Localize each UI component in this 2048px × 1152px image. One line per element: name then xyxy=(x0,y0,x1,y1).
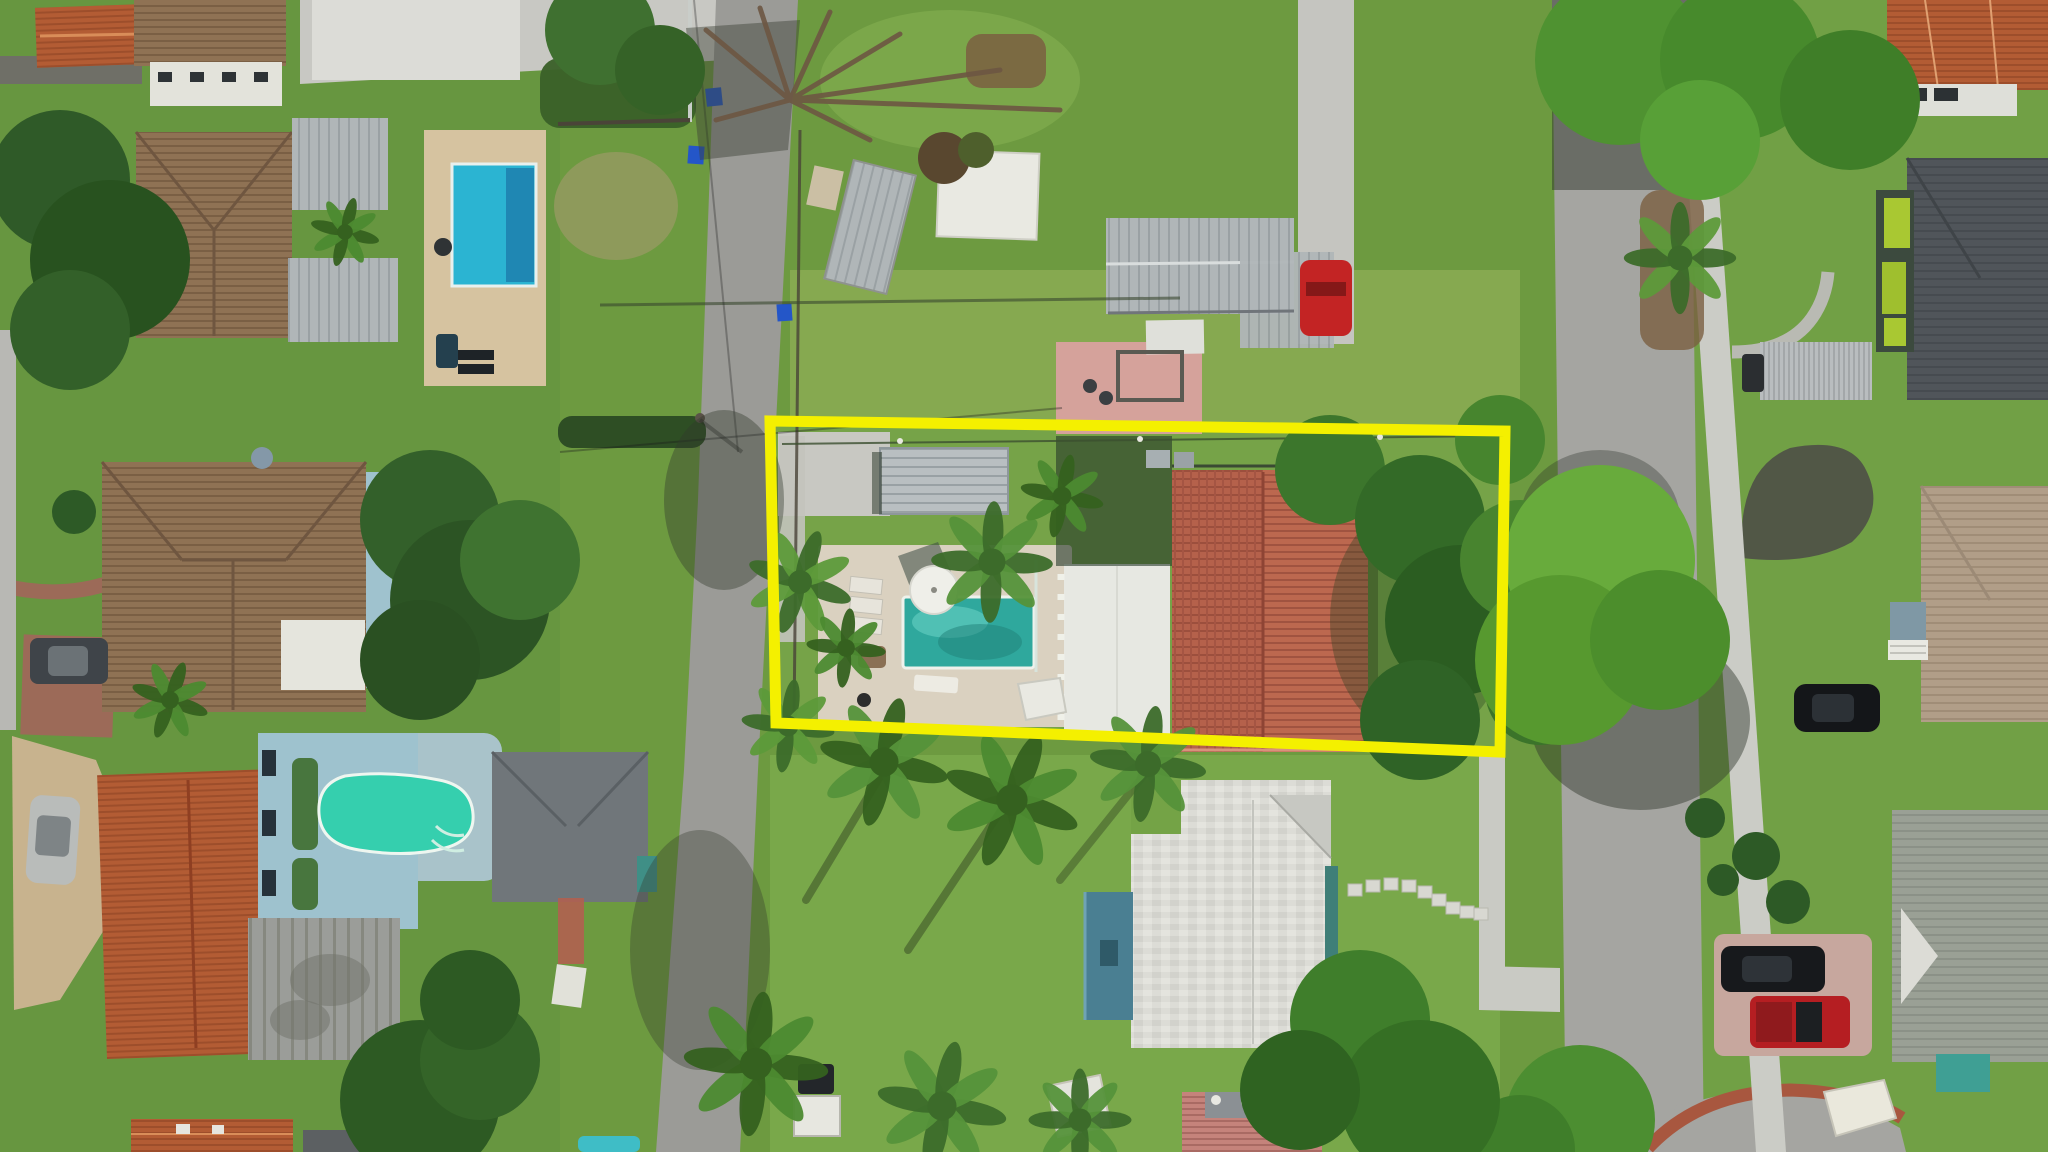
white-driveway-slab xyxy=(312,0,520,80)
white-tent xyxy=(1018,678,1066,720)
patio-chair xyxy=(1099,391,1113,405)
driveway-apron xyxy=(1479,966,1560,1012)
palm-tree xyxy=(1624,202,1736,314)
plank-stain xyxy=(270,1000,330,1040)
hot-tub xyxy=(436,334,458,368)
satellite-dish xyxy=(251,447,273,469)
grass-sandy-patch xyxy=(554,152,678,260)
teal-awning xyxy=(1936,1054,1990,1092)
car-under-carport xyxy=(1742,354,1764,392)
pool-kidney xyxy=(319,774,473,854)
tree xyxy=(1360,660,1480,780)
tree xyxy=(1780,30,1920,170)
deck-lounger xyxy=(458,364,494,374)
dark-car-glass xyxy=(48,646,88,676)
patio-chair xyxy=(1083,379,1097,393)
lanai-window xyxy=(190,72,204,82)
shed-vines xyxy=(958,132,994,168)
palm-crown xyxy=(837,639,855,657)
stepping-stone xyxy=(1474,908,1488,920)
metal-roof-b xyxy=(288,258,398,342)
orange-roof-ridge xyxy=(40,34,140,36)
fence-post xyxy=(1377,434,1383,440)
palm-crown xyxy=(1053,487,1072,506)
stepping-stone xyxy=(1402,880,1416,892)
silver-car-glass xyxy=(35,815,72,857)
deck-lounger xyxy=(458,350,494,360)
white-roof-edge xyxy=(1146,319,1205,354)
palm-crown xyxy=(740,1048,772,1080)
red-car xyxy=(1300,260,1352,336)
topiary-ball xyxy=(1766,880,1810,924)
white-tarp xyxy=(551,964,586,1008)
red-car-glass xyxy=(1306,282,1346,296)
planter-hedge xyxy=(292,758,318,850)
topiary-ball xyxy=(1685,798,1725,838)
palm-crown xyxy=(869,747,898,776)
red-truck-bed xyxy=(1756,1002,1792,1042)
pool-topleft-deep xyxy=(506,168,534,282)
plank-stain xyxy=(290,954,370,1006)
lime-accent xyxy=(1884,318,1906,346)
tree xyxy=(1640,80,1760,200)
stepping-stone xyxy=(1418,886,1432,898)
bush xyxy=(420,950,520,1050)
terracotta-roof-bottom xyxy=(131,1119,293,1152)
fence-post xyxy=(1137,436,1143,442)
mulch-patch xyxy=(966,34,1046,88)
carport-vent xyxy=(1100,940,1118,966)
roof-ac xyxy=(176,1124,190,1134)
white-chaise xyxy=(913,674,958,693)
stepping-stone xyxy=(1432,894,1446,906)
planter-hedge xyxy=(292,858,318,910)
lounger xyxy=(849,576,882,594)
palm-crown xyxy=(1135,751,1161,777)
umbrella-pole xyxy=(931,587,937,593)
white-awning xyxy=(1888,640,1928,660)
tree xyxy=(360,600,480,720)
palm-crown xyxy=(337,224,353,240)
black-car-2-glass xyxy=(1742,956,1792,982)
stepping-stone xyxy=(1366,880,1380,892)
topiary-ball xyxy=(1707,864,1739,896)
red-truck-cab xyxy=(1796,1002,1822,1042)
stepping-stone xyxy=(1348,884,1362,896)
aerial-photo xyxy=(0,0,2048,1152)
bush xyxy=(52,490,96,534)
tree xyxy=(10,270,130,390)
metal-roof-a xyxy=(292,118,388,210)
aerial-photo-canvas xyxy=(0,0,2048,1152)
lime-accent xyxy=(1884,198,1910,248)
lanai-window xyxy=(254,72,268,82)
carport-pergola xyxy=(880,448,1008,514)
trash-bin xyxy=(776,303,792,321)
lanai-window xyxy=(158,72,172,82)
stepping-stone xyxy=(1384,878,1398,890)
tree xyxy=(615,25,705,115)
lanai-top xyxy=(150,62,282,106)
blue-house-window xyxy=(262,750,276,776)
red-paver-patch xyxy=(558,898,584,964)
pool-main-shadow xyxy=(938,624,1022,660)
palm-crown xyxy=(788,570,812,594)
lime-accent xyxy=(1882,262,1906,314)
tree xyxy=(460,500,580,620)
roof-ac xyxy=(212,1125,224,1134)
blue-house-window xyxy=(262,870,276,896)
lanai-window xyxy=(222,72,236,82)
stepping-stone xyxy=(1460,906,1474,918)
stepping-stone xyxy=(1446,902,1460,914)
road-shadow-top xyxy=(686,20,800,160)
skylight xyxy=(1934,88,1958,101)
walkway-white-house xyxy=(1479,754,1505,968)
gray-house-eave xyxy=(1108,311,1294,313)
topiary-ball xyxy=(1732,832,1780,880)
lounger xyxy=(849,596,882,614)
palm-crown xyxy=(927,1091,956,1120)
palm-crown xyxy=(996,784,1027,815)
palm-crown xyxy=(161,691,179,709)
palm-crown xyxy=(1668,246,1693,271)
tan-brick-roof xyxy=(1921,486,2048,722)
palm-crown xyxy=(1069,1109,1092,1132)
deck-grill xyxy=(434,238,452,256)
black-sedan-glass xyxy=(1812,694,1854,722)
fence-post xyxy=(897,438,903,444)
left-road-sliver xyxy=(0,330,16,730)
pergola-shadow xyxy=(872,452,882,514)
pool-sliver-bottom xyxy=(578,1136,640,1152)
ac-unit xyxy=(1174,452,1194,468)
lanai-house2 xyxy=(281,620,365,690)
ac-unit xyxy=(1146,450,1170,468)
brown-roof-top xyxy=(134,0,286,66)
corrugated-carport xyxy=(1760,342,1872,400)
tree xyxy=(1590,570,1730,710)
patio-grill xyxy=(857,693,871,707)
palm-crown xyxy=(978,548,1005,575)
roof-ac xyxy=(1211,1095,1221,1105)
tree xyxy=(1240,1030,1360,1150)
blue-house-window xyxy=(262,810,276,836)
